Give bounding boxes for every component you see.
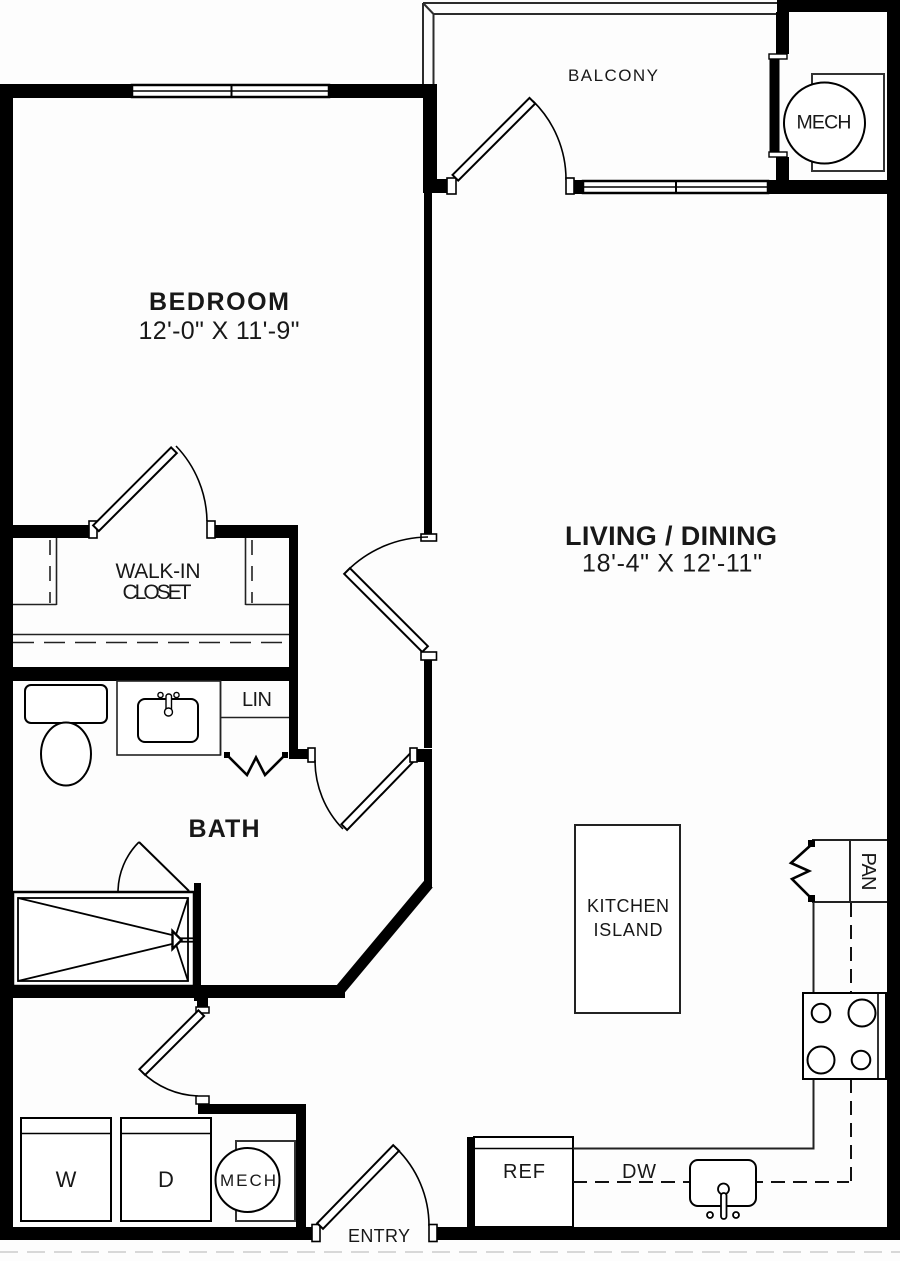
svg-text:WALK-IN: WALK-IN bbox=[116, 560, 201, 583]
svg-text:ENTRY: ENTRY bbox=[348, 1226, 410, 1246]
svg-text:PAN: PAN bbox=[857, 853, 879, 891]
svg-text:KITCHEN: KITCHEN bbox=[587, 896, 669, 916]
svg-text:12'-0" X 11'-9": 12'-0" X 11'-9" bbox=[139, 317, 300, 345]
svg-text:LIN: LIN bbox=[242, 689, 272, 711]
svg-text:D: D bbox=[158, 1167, 174, 1192]
svg-text:ISLAND: ISLAND bbox=[594, 920, 663, 940]
svg-text:REF: REF bbox=[503, 1161, 545, 1183]
svg-text:MECH: MECH bbox=[797, 112, 852, 134]
svg-text:18'-4" X 12'-11": 18'-4" X 12'-11" bbox=[582, 550, 762, 578]
svg-text:BEDROOM: BEDROOM bbox=[149, 288, 289, 316]
svg-text:LIVING / DINING: LIVING / DINING bbox=[565, 521, 777, 551]
svg-text:BALCONY: BALCONY bbox=[568, 66, 658, 85]
svg-text:DW: DW bbox=[622, 1161, 656, 1183]
svg-text:W: W bbox=[56, 1167, 77, 1192]
svg-text:CLOSET: CLOSET bbox=[123, 581, 192, 604]
